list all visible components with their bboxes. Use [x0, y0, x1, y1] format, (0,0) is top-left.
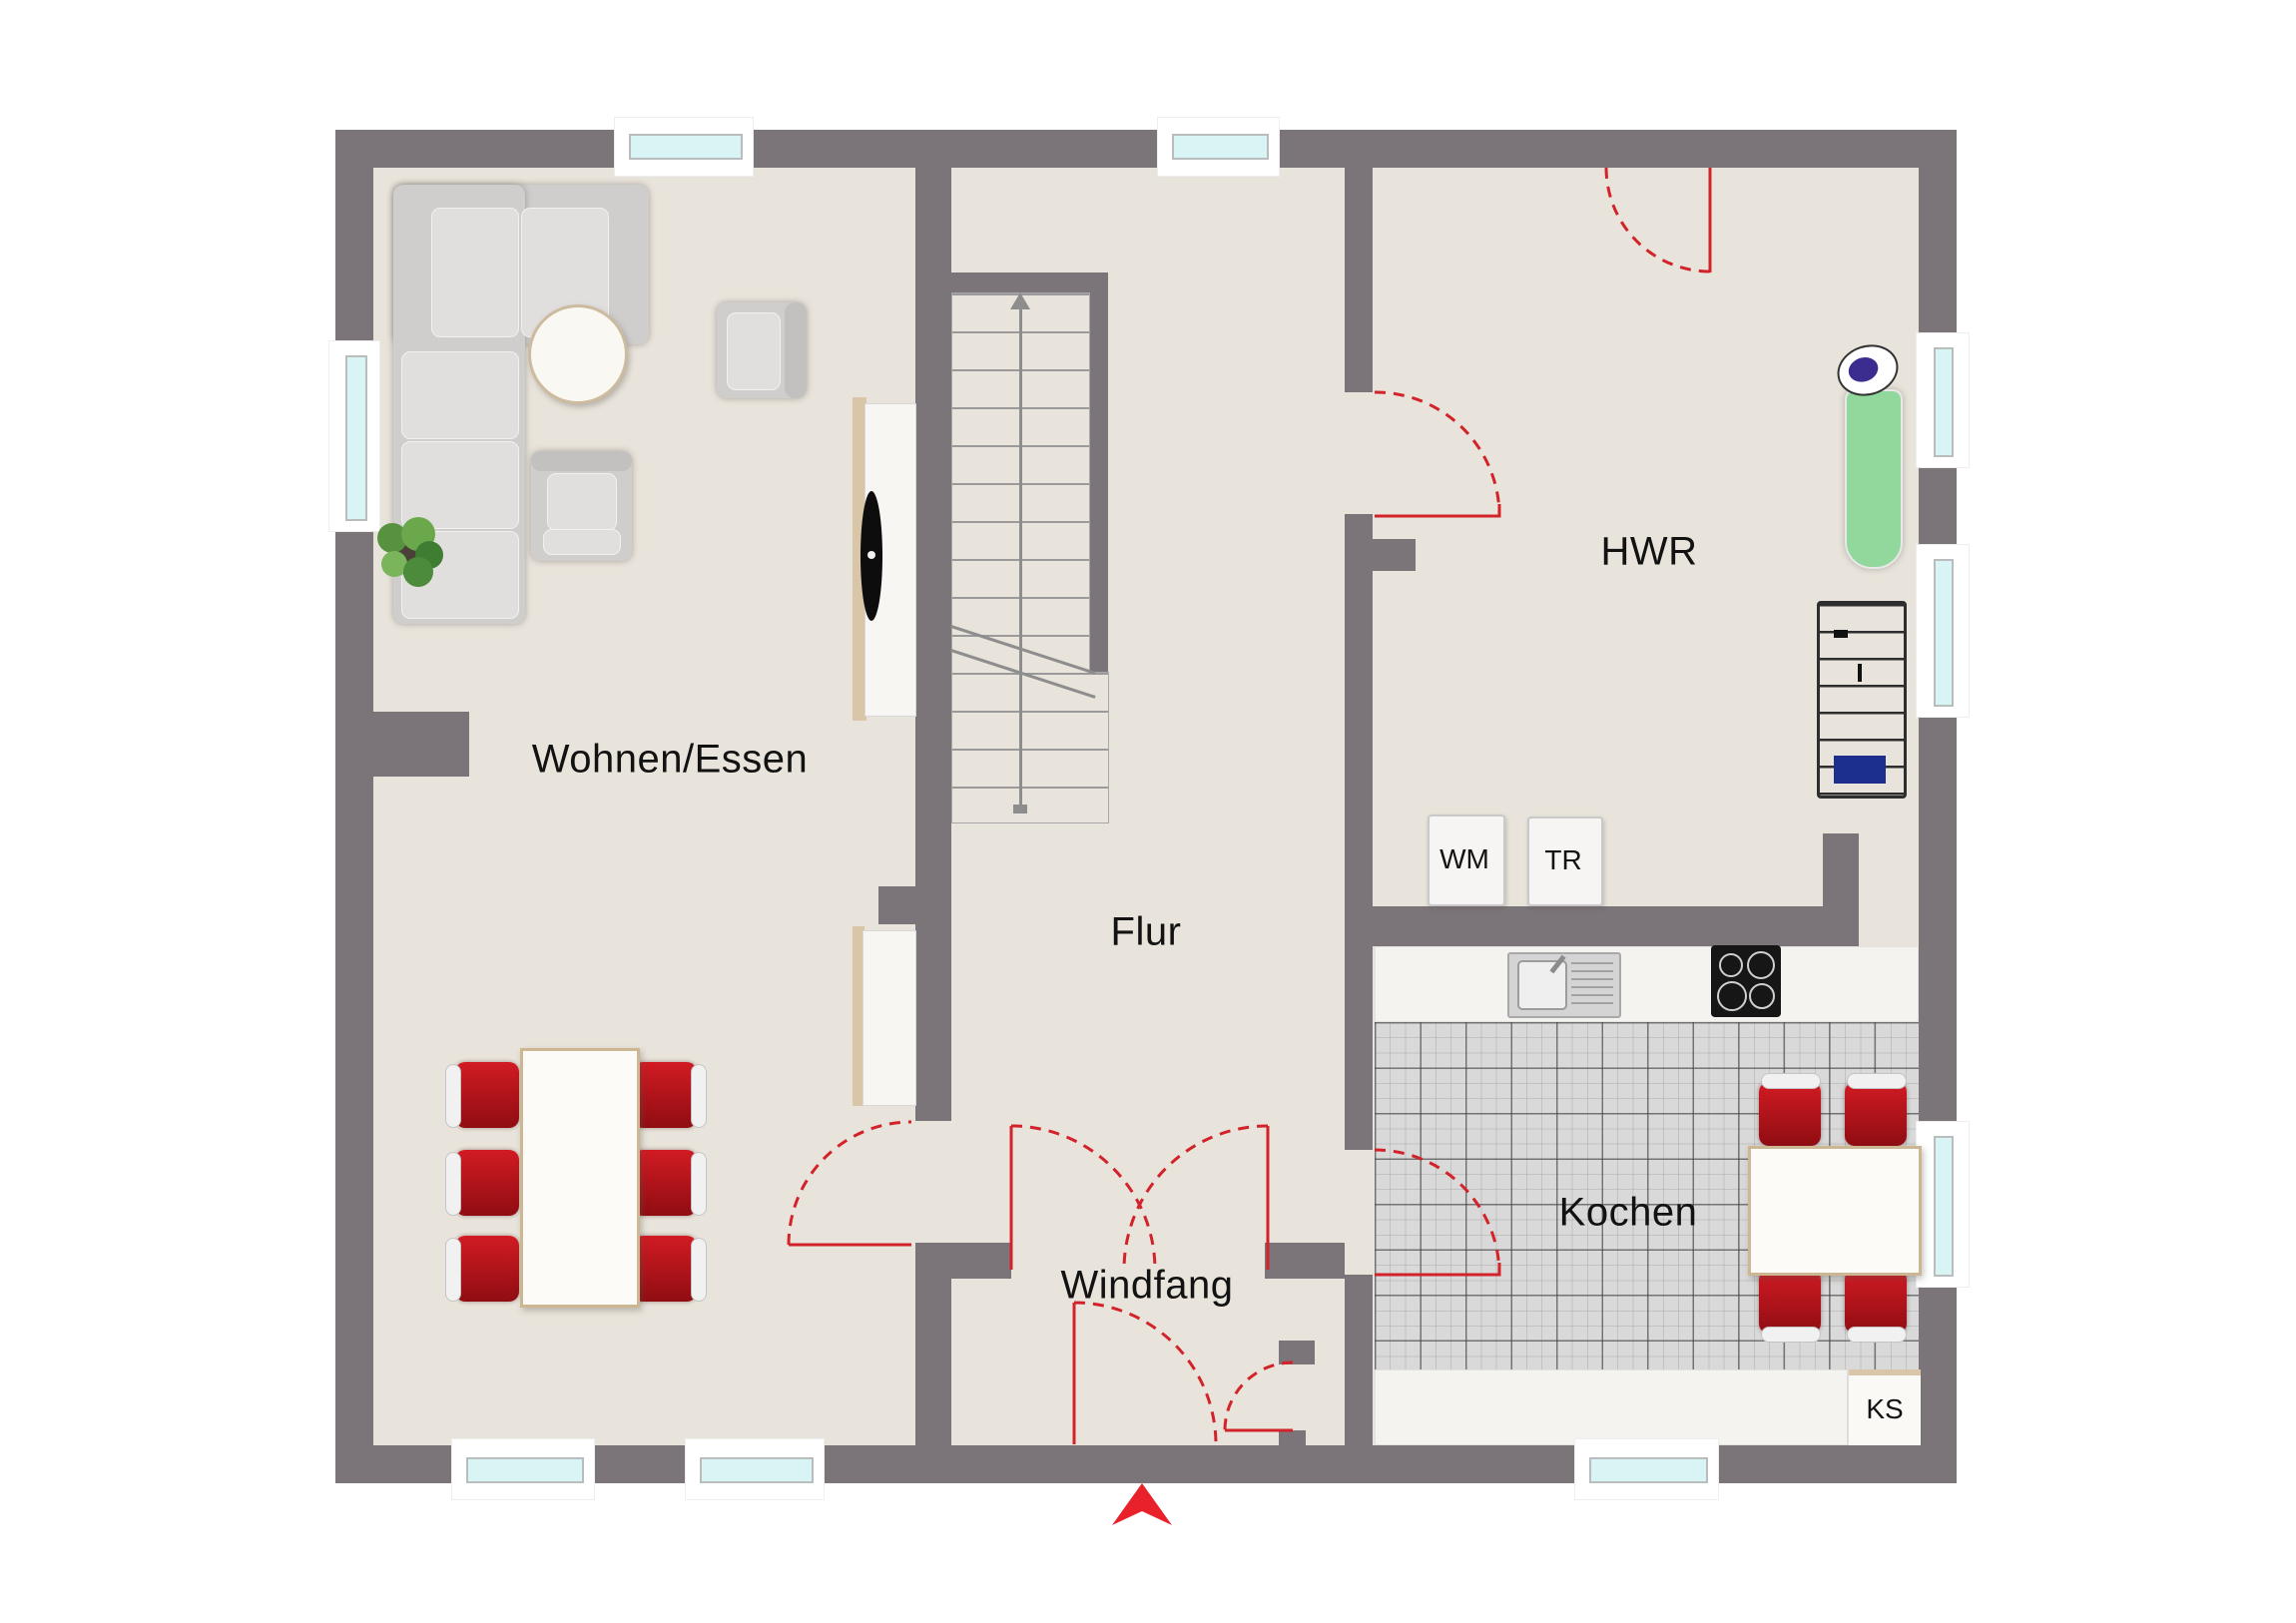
wall-flur-hwr-lower	[1345, 514, 1373, 1150]
chair-back	[691, 1152, 707, 1216]
hob-ring	[1749, 983, 1775, 1009]
dining-chair	[633, 1150, 697, 1216]
chair-back	[445, 1238, 461, 1302]
window-right-2-glass	[1934, 559, 1954, 707]
appliance-label-wm: WM	[1439, 843, 1489, 875]
window-top-2-glass	[1172, 134, 1269, 160]
window-bottom-2-glass	[700, 1457, 814, 1483]
wall-left	[335, 130, 373, 1483]
dining-chair	[633, 1062, 697, 1128]
round-side-table	[528, 304, 628, 404]
chair-back	[1761, 1073, 1821, 1089]
hob-ring	[1719, 953, 1743, 977]
drying-rack-icon	[1817, 601, 1907, 799]
stairs-line-foot	[1013, 805, 1027, 813]
cabinet	[862, 930, 916, 1106]
laundry-item	[1858, 664, 1862, 682]
wall-wohnen-flur-stub	[878, 886, 915, 924]
kitchen-counter-top	[1375, 946, 1919, 1022]
armchair-cushion	[727, 312, 781, 390]
dining-chair	[455, 1150, 519, 1216]
wall-hwr-kochen	[1373, 906, 1859, 946]
armchair-back	[531, 451, 632, 471]
room-label-windfang: Windfang	[1061, 1264, 1234, 1309]
armchair-front	[543, 529, 621, 555]
sink-basin	[1517, 960, 1567, 1010]
dining-chair	[455, 1236, 519, 1302]
stairs-right-border	[1088, 292, 1108, 672]
sofa-cushion	[431, 208, 519, 337]
wall-wohnen-flur	[915, 168, 951, 1121]
appliance-label-ks: KS	[1866, 1393, 1903, 1425]
chair-back	[691, 1238, 707, 1302]
wall-flur-kochen	[1345, 1275, 1373, 1445]
stairs-direction-line	[1019, 306, 1022, 811]
wall-windfang-north-west	[915, 1243, 1011, 1279]
hob-ring	[1717, 981, 1747, 1011]
ironing-board-icon	[1845, 389, 1903, 569]
dining-chair	[633, 1236, 697, 1302]
kitchen-chair	[1845, 1082, 1907, 1146]
room-label-wohnen: Wohnen/Essen	[532, 738, 809, 783]
kitchen-chair	[1845, 1270, 1907, 1334]
window-bottom-3-glass	[1589, 1457, 1708, 1483]
window-right-3-glass	[1934, 1136, 1954, 1277]
kitchen-table	[1748, 1146, 1922, 1276]
room-label-hwr: HWR	[1600, 530, 1697, 575]
armchair-bottom	[531, 451, 632, 561]
chair-back	[1847, 1327, 1907, 1343]
laundry-item	[1834, 756, 1886, 784]
kitchen-counter-bottom	[1375, 1369, 1919, 1445]
wall-left-stub	[373, 712, 469, 777]
sink-icon	[1507, 952, 1621, 1018]
hob-ring	[1747, 951, 1775, 979]
kitchen-chair	[1759, 1082, 1821, 1146]
kitchen-chair	[1759, 1270, 1821, 1334]
wall-hwr-stub	[1373, 539, 1416, 571]
tv-glint	[867, 551, 875, 559]
window-left-glass	[345, 355, 367, 521]
plant-icon	[379, 523, 443, 587]
room-label-kochen: Kochen	[1559, 1191, 1698, 1236]
entrance-arrow-icon	[1112, 1483, 1172, 1525]
armchair-right	[717, 302, 807, 398]
iron-body	[1846, 353, 1882, 385]
wall-windfang-north-east	[1265, 1243, 1345, 1279]
window-right-1-glass	[1934, 347, 1954, 457]
wall-windfang-east-bottom	[1279, 1430, 1306, 1445]
sink-drainer	[1571, 962, 1613, 1006]
wall-windfang-east-stub	[1279, 1341, 1315, 1364]
wall-flur-hwr-upper	[1345, 168, 1373, 392]
dining-table	[520, 1048, 640, 1308]
laundry-item	[1834, 630, 1848, 638]
dining-chair	[455, 1062, 519, 1128]
window-top-1-glass	[629, 134, 743, 160]
wall-top	[335, 130, 1957, 168]
chair-back	[445, 1152, 461, 1216]
armchair-cushion	[547, 473, 617, 531]
armchair-back	[785, 302, 807, 398]
floor-plan: Wohnen/Essen Flur HWR Kochen Windfang WM…	[0, 0, 2296, 1623]
sofa-cushion	[401, 441, 519, 529]
fridge-top-edge	[1849, 1369, 1921, 1375]
plant-leaf	[403, 557, 433, 587]
chair-back	[445, 1064, 461, 1128]
chair-back	[691, 1064, 707, 1128]
room-label-flur: Flur	[1111, 910, 1182, 955]
hob-icon	[1711, 945, 1781, 1017]
window-bottom-1-glass	[466, 1457, 584, 1483]
sofa-cushion	[401, 351, 519, 439]
appliance-label-tr: TR	[1544, 844, 1581, 876]
chair-back	[1761, 1327, 1821, 1343]
stairs-up-arrow-icon	[1010, 292, 1030, 309]
stairs-top-border	[951, 272, 1108, 292]
chair-back	[1847, 1073, 1907, 1089]
wall-hwr-kochen-stub	[1823, 833, 1859, 906]
